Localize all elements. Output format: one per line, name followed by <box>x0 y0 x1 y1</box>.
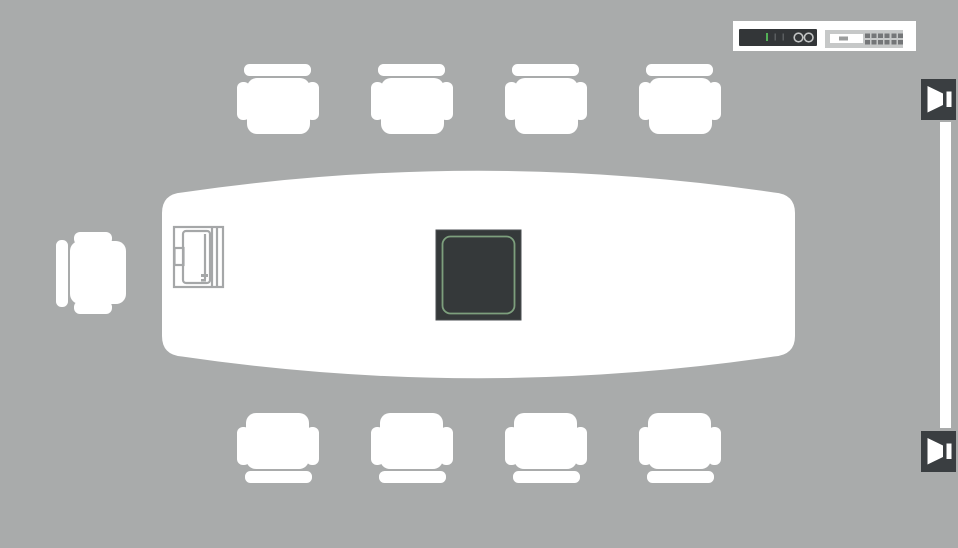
table-touch-panel[interactable] <box>436 230 521 320</box>
rack-switcher[interactable] <box>825 30 903 48</box>
touch-panel-body <box>436 230 521 320</box>
chair-top-4 <box>639 64 721 134</box>
chair-left-end <box>56 232 126 314</box>
chair-bottom-4 <box>639 413 721 483</box>
chair-bottom-1 <box>237 413 319 483</box>
amplifier-tick-2 <box>783 34 785 41</box>
enclosure-hinge-mark-1 <box>201 274 208 277</box>
amplifier-body <box>739 29 817 46</box>
amplifier-tick-1 <box>775 34 777 41</box>
display-screen[interactable] <box>940 122 951 428</box>
rack-amplifier[interactable] <box>739 29 817 46</box>
chair-top-3 <box>505 64 587 134</box>
enclosure-hinge-mark-2 <box>201 279 206 282</box>
speaker-top-right[interactable] <box>921 79 956 120</box>
switcher-slot-dash <box>839 37 848 41</box>
chair-top-1 <box>237 64 319 134</box>
speaker-bottom-right[interactable] <box>921 431 956 472</box>
chair-bottom-2 <box>371 413 453 483</box>
room-plan-canvas <box>0 0 958 548</box>
room-floorplan <box>0 0 958 548</box>
amplifier-power-led <box>766 33 768 41</box>
chair-bottom-3 <box>505 413 587 483</box>
chair-top-2 <box>371 64 453 134</box>
equipment-rack-panel <box>733 21 916 51</box>
